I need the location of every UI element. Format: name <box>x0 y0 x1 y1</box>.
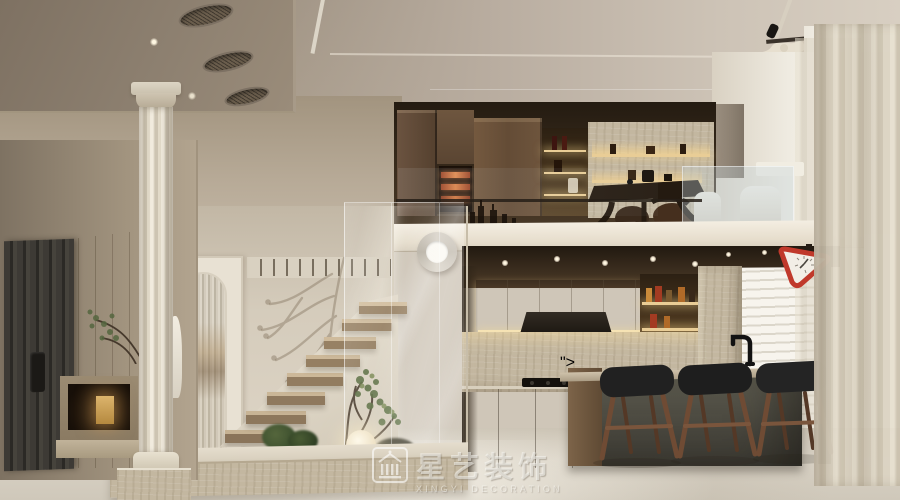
foyer-plant <box>66 268 150 364</box>
recessed-downlight <box>150 38 158 46</box>
fluted-column-shaft <box>139 107 173 455</box>
spice-jar <box>678 287 685 302</box>
display-shelf-lit <box>544 150 586 152</box>
cooktop-knob <box>546 381 550 385</box>
kitchen-downlight <box>650 256 656 262</box>
decor-object <box>610 144 616 154</box>
faucet-and-bar-stools <box>556 330 856 472</box>
kitchen-downlight <box>502 260 508 266</box>
watermark-title: 星艺装饰 <box>416 444 563 486</box>
stair-glass-balustrade <box>344 202 464 460</box>
interior-render-photo: "> <box>0 0 900 500</box>
stone-niche <box>60 376 138 442</box>
kitchen-downlight <box>726 252 731 257</box>
spice-jar <box>666 290 672 302</box>
decor-object <box>646 146 655 154</box>
classical-building-icon <box>370 444 410 486</box>
glass-panel-seam <box>391 203 392 460</box>
kitchen-downlight <box>554 256 560 262</box>
spice-jar <box>646 288 652 302</box>
stair-step <box>246 411 306 424</box>
watermark: 星艺装饰 XINGYI DECORATION <box>370 444 563 494</box>
watermark-subtitle: XINGYI DECORATION <box>416 484 563 494</box>
wine-bottle <box>562 136 567 150</box>
spice-jar <box>650 314 657 328</box>
cooktop-knob <box>530 381 534 385</box>
wine-bottle <box>552 136 557 150</box>
brass-plaque-lit <box>96 396 114 424</box>
recessed-downlight <box>188 92 196 100</box>
spice-jar <box>689 290 695 302</box>
spice-jar <box>664 316 670 328</box>
glass-panel-seam <box>439 203 440 460</box>
loft-cabinet-upper-left <box>437 110 474 164</box>
spice-shelf-lit <box>642 302 700 305</box>
curtain-fold-shading <box>814 24 900 486</box>
niche-bench-top <box>56 440 142 458</box>
decor-object <box>680 144 686 154</box>
door-handle <box>30 352 45 393</box>
loft-glass-railing-panel <box>682 166 794 226</box>
stone-shelf-lit <box>592 154 710 157</box>
kitchen-downlight <box>762 250 767 255</box>
spice-jar <box>655 286 662 302</box>
kitchen-downlight <box>602 260 608 266</box>
column-plinth <box>117 468 191 500</box>
